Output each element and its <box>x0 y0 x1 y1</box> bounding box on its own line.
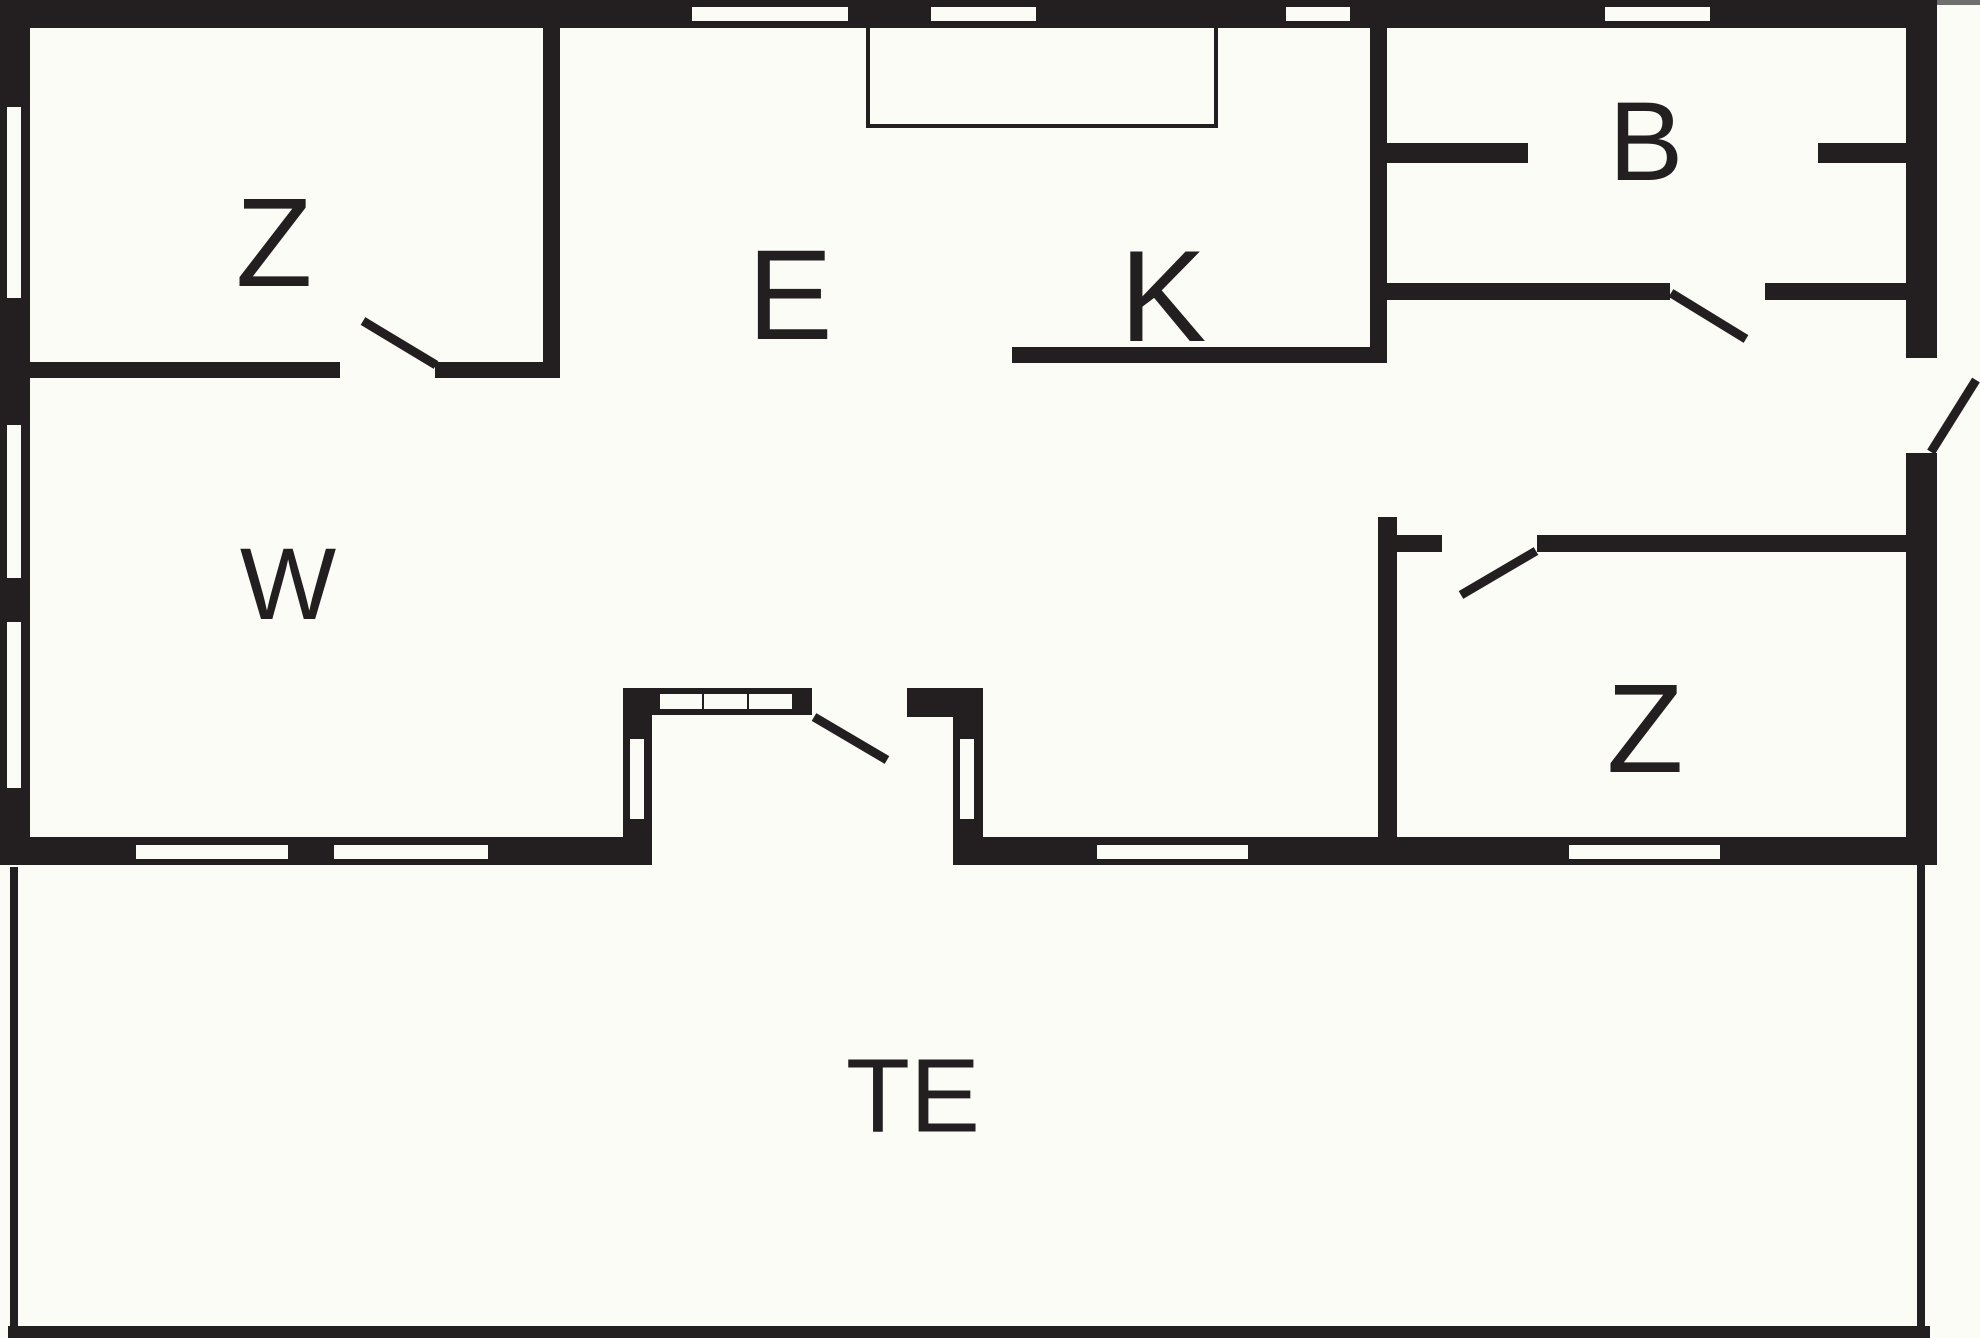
terrace-edge-left <box>10 867 18 1330</box>
door-swing-bedroom2-icon <box>1461 551 1536 595</box>
terrace-edge-right <box>1917 865 1925 1330</box>
outer-wall-right-lower <box>1906 453 1937 865</box>
room-label-living: W <box>240 533 336 635</box>
door-swing-bedroom1-icon <box>363 321 436 365</box>
terrace-edge-bottom <box>8 1326 1930 1338</box>
window-alcove-north-1 <box>658 692 704 711</box>
window-left-2 <box>5 423 23 580</box>
kitchen-counter <box>866 28 1218 128</box>
window-left-3 <box>5 620 23 790</box>
door-swing-bathroom-icon <box>1671 293 1746 339</box>
wall-bedroom1-bottom-right <box>435 362 560 378</box>
wall-bath-stub-right <box>1818 143 1906 163</box>
door-swing-alcove-icon <box>814 717 887 760</box>
window-bottom-2 <box>332 843 490 861</box>
room-label-bathroom: B <box>1609 86 1684 198</box>
room-label-dining: E <box>747 232 832 360</box>
window-left-1 <box>5 105 23 300</box>
window-alcove-north-3 <box>747 692 794 711</box>
door-swing-entry-icon <box>1931 380 1976 452</box>
wall-bedroom2-left <box>1378 517 1397 837</box>
room-label-terrace: TE <box>846 1044 980 1149</box>
outer-wall-right-upper <box>1906 0 1937 358</box>
window-alcove-north-2 <box>702 692 749 711</box>
window-bottom-1 <box>134 843 290 861</box>
window-alcove-right <box>958 737 976 821</box>
floor-plan: Z E K B W Z TE <box>0 0 1980 1338</box>
wall-bath-bottom-right <box>1765 283 1906 300</box>
wall-bedroom1-right <box>543 28 560 378</box>
room-label-bedroom2: Z <box>1607 666 1684 792</box>
alcove-wall-top-right <box>907 688 983 717</box>
room-label-bedroom1: Z <box>236 180 313 306</box>
wall-bedroom1-bottom-left <box>30 362 340 378</box>
outer-wall-bottom-left <box>0 837 652 865</box>
window-top-2 <box>929 5 1038 23</box>
window-bottom-4 <box>1567 843 1722 861</box>
wall-bedroom2-top <box>1537 535 1907 552</box>
wall-bath-bottom-left <box>1387 283 1670 300</box>
window-top-4 <box>1603 5 1712 23</box>
window-bottom-3 <box>1095 843 1250 861</box>
window-top-3 <box>1284 5 1352 23</box>
wall-bedroom2-top-stub <box>1392 535 1442 552</box>
wall-bath-stub-left <box>1387 143 1528 163</box>
room-label-kitchen: K <box>1120 231 1207 361</box>
window-top-1 <box>690 5 850 23</box>
wall-kitchen-bath-vertical <box>1370 28 1387 363</box>
window-alcove-left <box>628 737 646 821</box>
